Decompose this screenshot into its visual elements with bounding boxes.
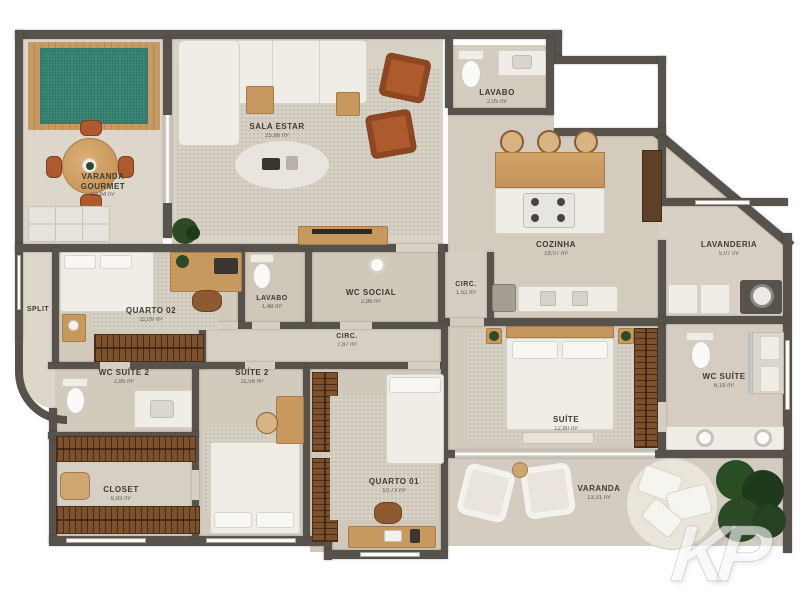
closet-wardrobe bbox=[56, 436, 196, 462]
wall bbox=[52, 248, 59, 362]
room-area: 19,07 m² bbox=[511, 251, 601, 257]
window bbox=[66, 538, 146, 543]
room-name: LAVABO bbox=[242, 295, 302, 303]
wall bbox=[554, 56, 666, 64]
sofa-chaise bbox=[178, 40, 240, 146]
nightstand-plant bbox=[621, 331, 631, 341]
lamp bbox=[68, 320, 79, 331]
shower-head bbox=[368, 256, 386, 274]
pillow bbox=[562, 341, 608, 359]
room-label-lavabo-2: LAVABO 1,48 m² bbox=[242, 295, 302, 310]
cooktop bbox=[523, 193, 575, 228]
leather-armchair bbox=[378, 52, 432, 105]
counter-sink bbox=[540, 291, 556, 306]
toilet-bowl bbox=[66, 387, 85, 414]
room-label-circ-2: CIRC. 7,87 m² bbox=[302, 333, 392, 348]
room-area: 25,86 m² bbox=[232, 133, 322, 139]
room-area: 11,09 m² bbox=[106, 317, 196, 323]
closet-wardrobe bbox=[56, 506, 200, 534]
bar-stool bbox=[574, 130, 598, 154]
room-label-wc-social: WC SOCIAL 2,86 m² bbox=[326, 288, 416, 305]
room-name: VARANDA GOURMET bbox=[63, 172, 143, 191]
sliding-glass-door bbox=[455, 450, 655, 458]
tall-cabinet bbox=[642, 150, 662, 222]
pillow bbox=[256, 512, 294, 528]
glass-door bbox=[163, 115, 172, 203]
tv bbox=[312, 229, 372, 234]
burner bbox=[531, 214, 539, 222]
room-name: LAVANDERIA bbox=[684, 240, 774, 250]
round-sink bbox=[696, 429, 714, 447]
toilet-tank bbox=[250, 254, 274, 263]
room-name: WC SUÍTE bbox=[679, 372, 769, 382]
window bbox=[206, 538, 296, 543]
door-opening bbox=[396, 244, 438, 252]
window bbox=[17, 255, 21, 310]
room-name: WC SOCIAL bbox=[326, 288, 416, 298]
burner bbox=[531, 198, 539, 206]
desk-chair bbox=[192, 290, 222, 312]
door-opening bbox=[450, 318, 484, 326]
side-table bbox=[512, 462, 528, 478]
toilet-tank bbox=[686, 332, 714, 341]
monitor bbox=[214, 258, 238, 274]
room-label-suite-2: SUÍTE 2 11,56 m² bbox=[207, 368, 297, 385]
door-opening bbox=[192, 470, 199, 500]
wall bbox=[192, 368, 199, 438]
wall bbox=[206, 322, 448, 329]
room-area: 1,48 m² bbox=[242, 304, 302, 310]
wall bbox=[445, 38, 453, 108]
floor-plan-canvas: VARANDA GOURMET 12,84 m² SALA ESTAR 25,8… bbox=[0, 0, 800, 600]
toilet-bowl bbox=[253, 263, 271, 289]
bed-bench bbox=[522, 432, 594, 444]
room-name: WC SUÍTE 2 bbox=[79, 368, 169, 378]
island-bar-top bbox=[495, 152, 605, 188]
room-name: QUARTO 01 bbox=[349, 477, 439, 487]
wall bbox=[658, 316, 790, 324]
round-sink bbox=[754, 429, 772, 447]
room-label-varanda-gourmet: VARANDA GOURMET 12,84 m² bbox=[63, 172, 143, 198]
wall bbox=[658, 240, 666, 324]
wall bbox=[15, 30, 562, 39]
room-area: 6,83 m² bbox=[76, 496, 166, 502]
nightstand-plant bbox=[489, 331, 499, 341]
window bbox=[695, 200, 750, 205]
room-area: 5,07 m² bbox=[684, 251, 774, 257]
room-label-split: SPLIT bbox=[12, 306, 64, 315]
gourmet-counter bbox=[28, 206, 110, 242]
wardrobe bbox=[94, 334, 204, 362]
coffee-table bbox=[234, 140, 330, 190]
window bbox=[360, 552, 420, 557]
room-area: 6,19 m² bbox=[679, 383, 769, 389]
desk bbox=[276, 396, 304, 444]
side-table bbox=[336, 92, 360, 116]
kp-logo-watermark: KP bbox=[667, 508, 764, 600]
door-opening bbox=[658, 402, 666, 432]
room-label-lavanderia: LAVANDERIA 5,07 m² bbox=[684, 240, 774, 257]
room-label-wc-suite: WC SUÍTE 6,19 m² bbox=[679, 372, 769, 389]
room-area: 2,85 m² bbox=[79, 379, 169, 385]
laundry-tank bbox=[668, 284, 698, 314]
room-name: CIRC. bbox=[436, 281, 496, 289]
room-label-quarto-01: QUARTO 01 10,73 m² bbox=[349, 477, 439, 494]
door-opening bbox=[408, 362, 440, 369]
room-name: VARANDA bbox=[554, 484, 644, 494]
room-name: LAVABO bbox=[457, 88, 537, 98]
room-label-quarto-02: QUARTO 02 11,09 m² bbox=[106, 306, 196, 323]
room-label-circ-1: CIRC. 1,52 m² bbox=[436, 281, 496, 296]
room-area: 12,84 m² bbox=[63, 192, 143, 198]
room-label-cozinha: COZINHA 19,07 m² bbox=[511, 240, 601, 257]
washing-machine-door bbox=[750, 284, 774, 308]
room-label-wc-suite-2: WC SUÍTE 2 2,85 m² bbox=[79, 368, 169, 385]
wall bbox=[303, 368, 310, 538]
room-name: CLOSET bbox=[76, 485, 166, 495]
room-label-closet: CLOSET 6,83 m² bbox=[76, 485, 166, 502]
room-label-sala-estar: SALA ESTAR 25,86 m² bbox=[232, 122, 322, 139]
shower-niche bbox=[760, 336, 780, 360]
plant bbox=[186, 226, 200, 240]
room-area: 2,86 m² bbox=[326, 299, 416, 305]
pillow bbox=[214, 512, 252, 528]
wall bbox=[15, 244, 448, 252]
room-label-lavabo-1: LAVABO 2,05 m² bbox=[457, 88, 537, 105]
coffee-table-books bbox=[262, 158, 280, 170]
door-opening bbox=[340, 322, 372, 329]
coffee-table-decor bbox=[286, 156, 298, 170]
room-area: 2,05 m² bbox=[457, 99, 537, 105]
wall bbox=[546, 38, 554, 115]
room-label-suite: SUÍTE 12,80 m² bbox=[521, 415, 611, 432]
dining-chair bbox=[46, 156, 62, 178]
headboard bbox=[506, 326, 614, 338]
dining-chair bbox=[80, 120, 102, 136]
wall bbox=[554, 128, 666, 136]
leather-armchair bbox=[365, 108, 418, 159]
pillow bbox=[389, 377, 441, 393]
room-name: SALA ESTAR bbox=[232, 122, 322, 132]
green-rug bbox=[40, 48, 148, 124]
room-area: 13,31 m² bbox=[554, 495, 644, 501]
bar-stool bbox=[500, 130, 524, 154]
room-name: SPLIT bbox=[12, 306, 64, 314]
window bbox=[785, 340, 790, 410]
room-area: 11,56 m² bbox=[207, 379, 297, 385]
room-area: 12,80 m² bbox=[521, 426, 611, 432]
counter-sink bbox=[572, 291, 588, 306]
room-label-varanda: VARANDA 13,31 m² bbox=[554, 484, 644, 501]
laptop bbox=[384, 530, 402, 542]
wall bbox=[658, 56, 666, 136]
table-plant bbox=[86, 162, 94, 170]
room-name: QUARTO 02 bbox=[106, 306, 196, 316]
kitchen-counter bbox=[518, 286, 618, 312]
desk-chair bbox=[256, 412, 278, 434]
desk-decor bbox=[410, 529, 420, 543]
desk-plant bbox=[176, 255, 189, 268]
bar-stool bbox=[537, 130, 561, 154]
toilet-tank bbox=[458, 50, 484, 60]
pillow bbox=[512, 341, 558, 359]
wardrobe bbox=[634, 328, 658, 448]
burner bbox=[557, 214, 565, 222]
room-name: CIRC. bbox=[302, 333, 392, 341]
wall bbox=[448, 108, 553, 115]
room-name: SUÍTE 2 bbox=[207, 368, 297, 378]
wall bbox=[305, 250, 312, 323]
wall-curved bbox=[15, 336, 67, 424]
desk-chair bbox=[374, 502, 402, 524]
pillow bbox=[64, 255, 96, 269]
room-name: COZINHA bbox=[511, 240, 601, 250]
sink bbox=[512, 55, 532, 69]
door-opening bbox=[252, 322, 280, 329]
wall bbox=[658, 324, 666, 456]
laundry-tank bbox=[700, 284, 730, 314]
room-name: SUÍTE bbox=[521, 415, 611, 425]
side-table bbox=[246, 86, 274, 114]
toilet-bowl bbox=[461, 60, 481, 88]
room-area: 7,87 m² bbox=[302, 342, 392, 348]
room-area: 10,73 m² bbox=[349, 488, 439, 494]
pillow bbox=[100, 255, 132, 269]
burner bbox=[557, 198, 565, 206]
toilet-bowl bbox=[691, 341, 711, 369]
room-area: 1,52 m² bbox=[436, 290, 496, 296]
sink bbox=[150, 400, 174, 418]
